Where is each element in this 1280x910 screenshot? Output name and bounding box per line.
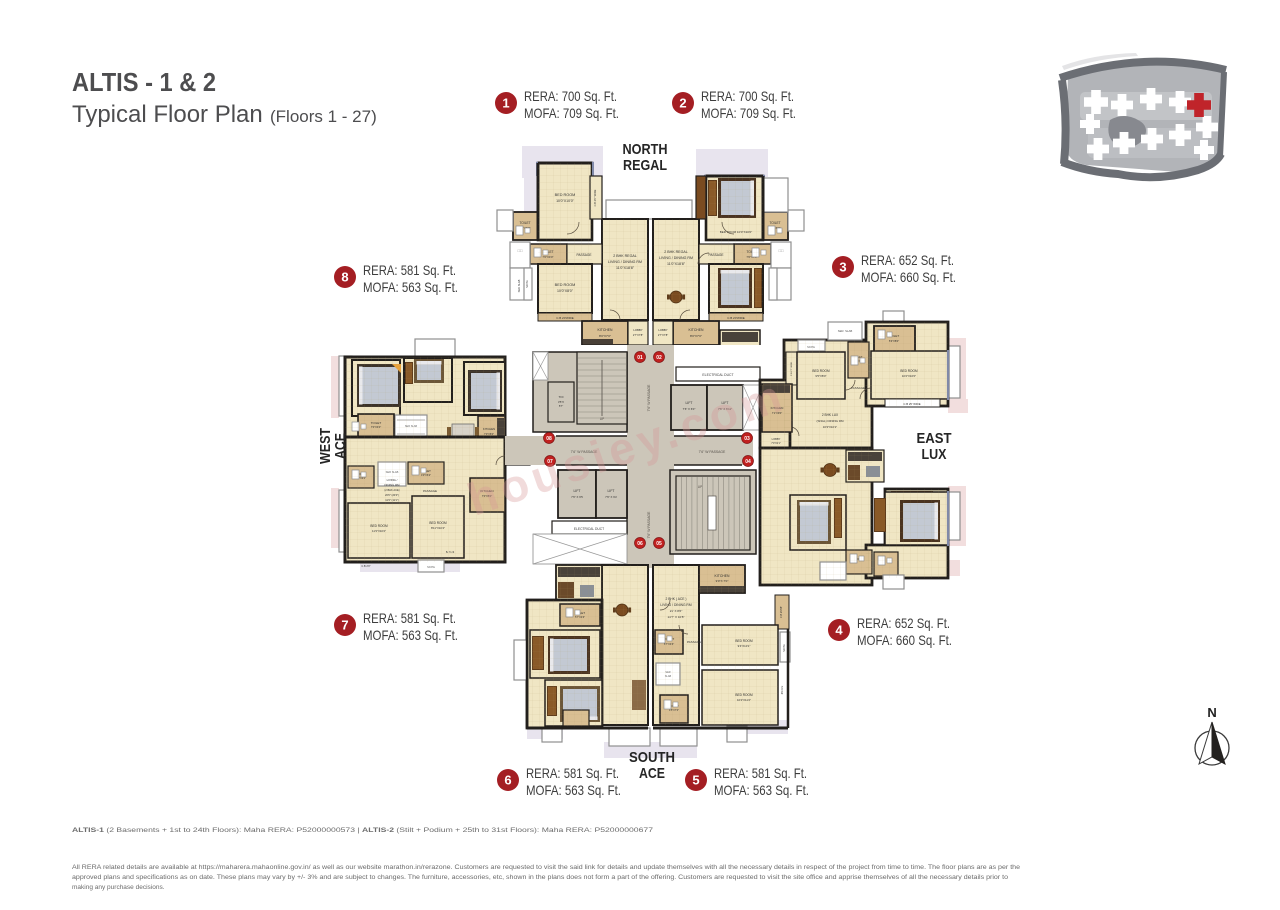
svg-text:7'6" W PASSAGE: 7'6" W PASSAGE — [647, 384, 651, 411]
svg-text:MOFA: 660 Sq. Ft.: MOFA: 660 Sq. Ft. — [857, 632, 952, 648]
svg-text:EAST: EAST — [917, 430, 952, 447]
svg-text:RERA: 581 Sq. Ft.: RERA: 581 Sq. Ft. — [363, 610, 456, 626]
svg-text:C.B 2'0" WIDE: C.B 2'0" WIDE — [593, 189, 597, 206]
svg-text:ALTIS-1 (2 Basements + 1st to: ALTIS-1 (2 Basements + 1st to 24th Floor… — [72, 827, 654, 834]
svg-text:TOILET: TOILET — [769, 221, 780, 225]
svg-text:3: 3 — [839, 260, 846, 275]
svg-text:making any purchase decisions.: making any purchase decisions. — [72, 884, 165, 891]
svg-text:2'7"X7'8": 2'7"X7'8" — [658, 333, 668, 337]
svg-text:LUX: LUX — [922, 446, 947, 463]
svg-text:RERA: 700 Sq. Ft.: RERA: 700 Sq. Ft. — [524, 88, 617, 104]
svg-text:RERA: 581 Sq. Ft.: RERA: 581 Sq. Ft. — [363, 262, 456, 278]
svg-text:02: 02 — [656, 355, 662, 361]
svg-text:RERA: 652 Sq. Ft.: RERA: 652 Sq. Ft. — [861, 252, 954, 268]
svg-text:RERA: 581 Sq. Ft.: RERA: 581 Sq. Ft. — [526, 765, 619, 781]
svg-text:NICHE: NICHE — [526, 280, 529, 288]
svg-text:MOFA: 709 Sq. Ft.: MOFA: 709 Sq. Ft. — [524, 105, 619, 121]
svg-text:NORTH: NORTH — [623, 141, 668, 158]
svg-text:UP: UP — [600, 417, 604, 421]
svg-text:7: 7 — [341, 618, 348, 633]
svg-text:8: 8 — [341, 270, 348, 285]
svg-text:SER SLAB: SER SLAB — [517, 279, 521, 292]
svg-text:□□: □□ — [518, 248, 523, 253]
svg-text:04: 04 — [745, 459, 751, 465]
svg-text:SOUTH: SOUTH — [629, 749, 675, 766]
svg-text:Typical Floor Plan: Typical Floor Plan — [72, 101, 263, 128]
svg-text:5'7": 5'7" — [559, 404, 563, 408]
svg-text:C.B 29'08": C.B 29'08" — [779, 606, 783, 618]
svg-text:3'5"X: 3'5"X — [558, 400, 564, 404]
svg-text:8'0"X7'0": 8'0"X7'0" — [690, 334, 702, 338]
svg-text:MOFA: 709 Sq. Ft.: MOFA: 709 Sq. Ft. — [701, 105, 796, 121]
svg-text:SER. SLAB: SER. SLAB — [838, 329, 853, 333]
svg-text:LOBBY: LOBBY — [633, 328, 642, 332]
svg-text:NICHE: NICHE — [783, 644, 786, 652]
svg-text:03: 03 — [744, 436, 750, 442]
svg-text:All RERA related details are a: All RERA related details are available a… — [72, 864, 1020, 871]
svg-text:C.B 2'0": C.B 2'0" — [361, 564, 370, 568]
svg-text:2: 2 — [679, 96, 686, 111]
svg-text:06: 06 — [637, 541, 643, 547]
svg-text:N: N — [1207, 705, 1216, 720]
svg-text:KITCHEN: KITCHEN — [598, 328, 613, 332]
svg-text:ELECTRICAL DUCT: ELECTRICAL DUCT — [574, 527, 604, 531]
svg-text:KITCHEN: KITCHEN — [689, 328, 704, 332]
svg-text:7'6" X 6'5: 7'6" X 6'5 — [571, 495, 583, 499]
svg-text:MOFA: 563 Sq. Ft.: MOFA: 563 Sq. Ft. — [526, 782, 621, 798]
svg-text:MOFA: 563 Sq. Ft.: MOFA: 563 Sq. Ft. — [363, 279, 458, 295]
svg-text:1: 1 — [502, 96, 509, 111]
svg-text:6: 6 — [504, 773, 511, 788]
svg-text:MOFA: 563 Sq. Ft.: MOFA: 563 Sq. Ft. — [714, 782, 809, 798]
svg-text:7'6" X 6'2: 7'6" X 6'2 — [605, 495, 617, 499]
svg-text:LOBBY: LOBBY — [658, 328, 667, 332]
svg-text:(Floors 1 - 27): (Floors 1 - 27) — [270, 107, 377, 126]
svg-text:7'6" W PASSAGE: 7'6" W PASSAGE — [647, 511, 651, 538]
svg-text:TOILET: TOILET — [519, 221, 530, 225]
svg-text:LIFT: LIFT — [608, 489, 615, 493]
svg-text:ELECTRICAL DUCT: ELECTRICAL DUCT — [702, 373, 733, 377]
svg-text:8'6 21'E: 8'6 21'E — [781, 685, 784, 694]
svg-text:7'6" W PASSAGE: 7'6" W PASSAGE — [699, 450, 726, 454]
svg-text:UP: UP — [698, 485, 702, 489]
svg-text:RERA: 700 Sq. Ft.: RERA: 700 Sq. Ft. — [701, 88, 794, 104]
svg-text:□□: □□ — [779, 248, 784, 253]
svg-text:MOFA: 660 Sq. Ft.: MOFA: 660 Sq. Ft. — [861, 269, 956, 285]
svg-text:ACE: ACE — [332, 433, 349, 459]
svg-text:MOFA: 563 Sq. Ft.: MOFA: 563 Sq. Ft. — [363, 627, 458, 643]
svg-text:2'7"X7'8": 2'7"X7'8" — [633, 333, 643, 337]
svg-text:NICHE: NICHE — [427, 566, 435, 569]
svg-text:08: 08 — [546, 436, 552, 442]
svg-text:05: 05 — [656, 541, 662, 547]
svg-text:REGAL: REGAL — [623, 157, 667, 174]
svg-text:8'0"X7'0": 8'0"X7'0" — [599, 334, 611, 338]
svg-text:RERA: 652 Sq. Ft.: RERA: 652 Sq. Ft. — [857, 615, 950, 631]
svg-text:approved plans and specificati: approved plans and specifications as on … — [72, 874, 1008, 881]
svg-text:TOI: TOI — [559, 395, 564, 399]
svg-text:ACE: ACE — [639, 765, 665, 782]
svg-text:01: 01 — [637, 355, 643, 361]
svg-text:4: 4 — [835, 623, 843, 638]
svg-text:ALTIS - 1 & 2: ALTIS - 1 & 2 — [72, 67, 216, 97]
svg-text:RERA: 581 Sq. Ft.: RERA: 581 Sq. Ft. — [714, 765, 807, 781]
svg-text:5: 5 — [692, 773, 699, 788]
